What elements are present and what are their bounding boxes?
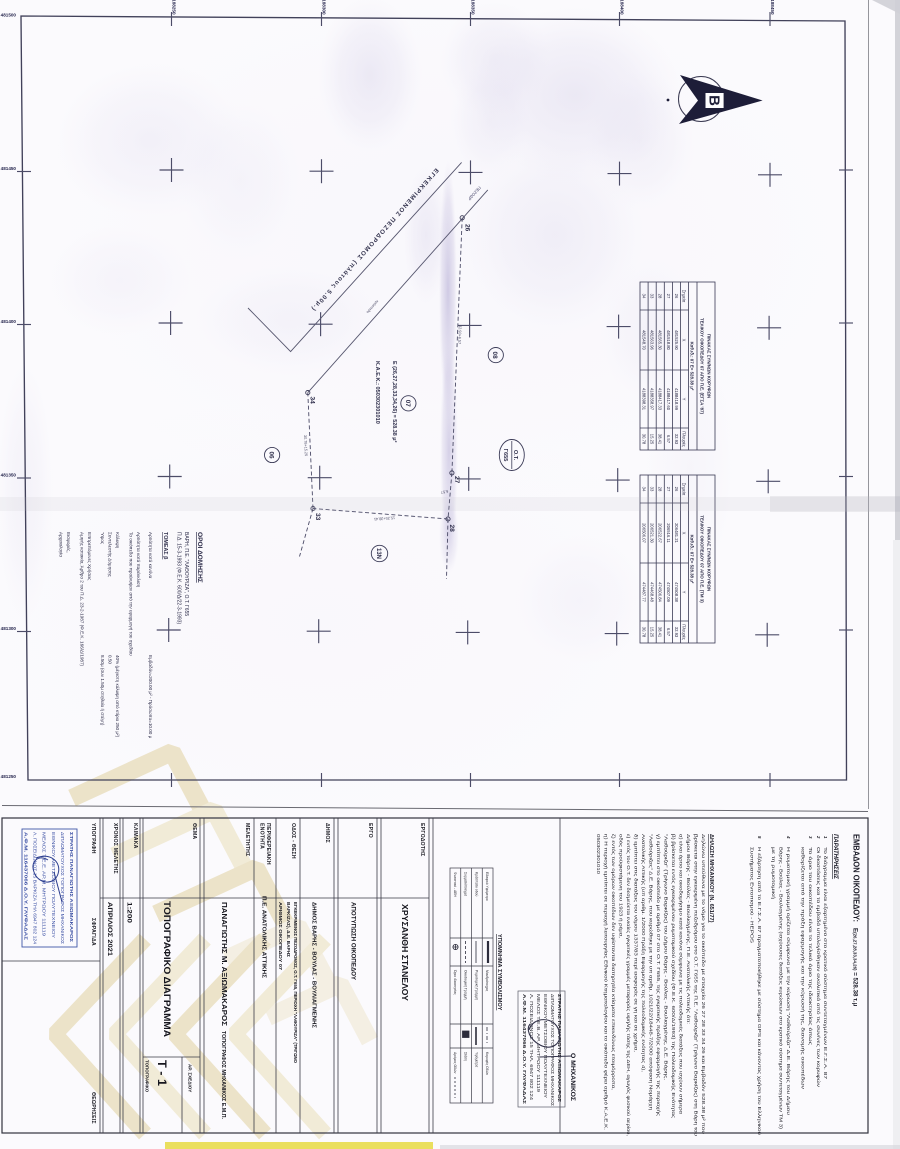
svg-text:Λ. ΠΟΣΕΙΔΩΝΟΣ 15 ΒΑΡΚΙΖΑ ΤΗΛ 6: Λ. ΠΟΣΕΙΔΩΝΟΣ 15 ΒΑΡΚΙΖΑ ΤΗΛ 6947 802 12… xyxy=(33,832,38,945)
svg-text:"Λαθούριζας" Δ.Ε. Βάρης, που: "Λαθούριζας" Δ.Ε. Βάρης, που κυρώθηκε με… xyxy=(649,834,654,1111)
svg-text:Δήμου Βάρης - Βούλας - Βουλιαγ: Δήμου Βάρης - Βούλας - Βουλιαγμένης, Π.Ε… xyxy=(686,834,691,1024)
svg-text:28: 28 xyxy=(658,487,663,492)
svg-text:Οικοδομική Γραμμή: Οικοδομική Γραμμή xyxy=(464,970,468,1000)
svg-text:4188417.60: 4188417.60 xyxy=(666,388,671,411)
svg-text:"Λαθούριζα" (Τρίγωνο Βαρκίζας): "Λαθούριζα" (Τρίγωνο Βαρκίζας) του Δήμου… xyxy=(664,834,669,1080)
svg-text:474487.77: 474487.77 xyxy=(642,582,647,602)
svg-text:Δηλώνω υπεύθυνα με το νόμο για: Δηλώνω υπεύθυνα με το νόμο για το οικόπε… xyxy=(701,834,706,1135)
svg-text:Υ: Υ xyxy=(682,398,687,401)
svg-text:ΧΡΥΣΑΝΘΗ ΣΤΑΝΕΛΟΥ: ΧΡΥΣΑΝΘΗ ΣΤΑΝΕΛΟΥ xyxy=(400,904,409,1002)
svg-text:ΘΕΜΑ: ΘΕΜΑ xyxy=(191,823,197,839)
svg-text:Κ.Α.Ε.Κ.: 050302301010: Κ.Α.Ε.Κ.: 050302301010 xyxy=(374,361,380,424)
svg-text:Πλευρές: Πλευρές xyxy=(682,624,687,640)
svg-text:Α.Φ.Μ. 116437066 Δ.Ο.Υ. ΓΛΥΦΑΔ: Α.Φ.Μ. 116437066 Δ.Ο.Υ. ΓΛΥΦΑΔΑΣ xyxy=(24,832,29,941)
svg-text:206516.11: 206516.11 xyxy=(666,523,671,543)
svg-text:27: 27 xyxy=(666,487,671,492)
svg-text:γ) εμπίπτει στο οικόπεδο με αρ: γ) εμπίπτει στο οικόπεδο με αριθμό 07 στ… xyxy=(656,834,661,1116)
svg-text:ε) εντός του Ο.Τ. δεν δεσμεύετ: ε) εντός του Ο.Τ. δεν δεσμεύεται ενιαίες… xyxy=(626,834,631,1136)
svg-text:Εδαφικό Υψόμετρο: Εδαφικό Υψόμετρο xyxy=(485,872,489,901)
svg-text:ΥΠΟΓΡΑΦΗ: ΥΠΟΓΡΑΦΗ xyxy=(90,823,96,854)
svg-text:ζ) εντός των ομόρων οικοπέδων: ζ) εντός των ομόρων οικοπέδων δεν υφίστα… xyxy=(611,834,616,1090)
svg-text:Ο ΜΗΧΑΝΙΚΟΣ: Ο ΜΗΧΑΝΙΚΟΣ xyxy=(569,1053,576,1101)
svg-text:Το όριο του οικοπέδου είναι το: Το όριο του οικοπέδου είναι το τελικό όρ… xyxy=(808,847,813,1045)
svg-text:4188300: 4188300 xyxy=(322,0,327,15)
svg-text:481450: 481450 xyxy=(1,166,17,171)
svg-text:Αρτιότητα κατά παρέκκλιση: Αρτιότητα κατά παρέκκλιση xyxy=(136,532,142,588)
svg-text:Η εξάρτηση από το Ε.Γ.Σ.Α. 87: Η εξάρτηση από το Ε.Γ.Σ.Α. 87 πραγματοπο… xyxy=(757,847,762,1136)
svg-text:15.25: 15.25 xyxy=(650,434,655,445)
svg-text:26: 26 xyxy=(674,487,679,492)
svg-text:4188400: 4188400 xyxy=(620,0,625,15)
svg-text:ΔΙΠΛΩΜΑΤΟΥΧΟΣ ΤΟΠΟΓΡΑΦΟΣ ΜΗΧΑΝ: ΔΙΠΛΩΜΑΤΟΥΧΟΣ ΤΟΠΟΓΡΑΦΟΣ ΜΗΧΑΝΙΚΟΣ xyxy=(550,994,555,1107)
svg-text:Η ρυμοτομική γραμμή ορίζεται σ: Η ρυμοτομική γραμμή ορίζεται σύμφωνα με … xyxy=(786,847,791,1116)
svg-text:Εισφορές,: Εισφορές, xyxy=(66,532,72,553)
svg-text:Υψόμετρα: Υψόμετρα xyxy=(474,1052,478,1067)
svg-text:ΠΑΝΑΓΙΩΤΗΣ Μ. ΑΞΙΩΜΑΚΑΡΟΣ: ΠΑΝΑΓΙΩΤΗΣ Μ. ΑΞΙΩΜΑΚΑΡΟΣ xyxy=(220,902,229,1026)
svg-text:καθορίζεται από την πράξη εφαρ: καθορίζεται από την πράξη εφαρμογής και … xyxy=(801,847,806,1090)
svg-text:4188418.99: 4188418.99 xyxy=(674,388,679,411)
svg-text:481500: 481500 xyxy=(1,13,17,18)
svg-text:ΠΑΡΑΤΗΡΗΣΕΙΣ: ΠΑΡΑΤΗΡΗΣΕΙΣ xyxy=(832,834,838,880)
svg-text:28: 28 xyxy=(658,294,663,299)
svg-text:474507.09: 474507.09 xyxy=(666,582,671,602)
svg-text:Ο.Τ.: Ο.Τ. xyxy=(512,450,518,461)
svg-text:28: 28 xyxy=(448,525,455,533)
svg-text:ΣΤΡΑΤΗΣ ΠΑΝΑΓΙΩΤΗΣ ΑΞΙΩΜΑΚΑΡΟΣ: ΣΤΡΑΤΗΣ ΠΑΝΑΓΙΩΤΗΣ ΑΞΙΩΜΑΚΑΡΟΣ xyxy=(69,832,74,943)
svg-text:30.78: 30.78 xyxy=(642,434,647,445)
svg-text:Όριο ιδιοκτησίας: Όριο ιδιοκτησίας xyxy=(453,969,457,995)
svg-text:β) βρίσκεται εντός εγκεκριμένο: β) βρίσκεται εντός εγκεκριμένου ρυμοτομι… xyxy=(671,834,676,1118)
svg-text:Κάλυψη: Κάλυψη xyxy=(115,532,121,549)
svg-text:Γ655: Γ655 xyxy=(502,449,508,462)
svg-text:ΒΑΡΗ, Π.Ε. "ΛΑΘΟΥΡΙΖΑ", Ο.Τ. Γ: ΒΑΡΗ, Π.Ε. "ΛΑΘΟΥΡΙΖΑ", Ο.Τ. Γ655 xyxy=(183,532,189,616)
svg-text:ΕΘΝΙΚΟΥ ΜΕΤΣΟΒΙΟΥ ΠΟΛΥΤΕΧΝΕΙΟΥ: ΕΘΝΙΚΟΥ ΜΕΤΣΟΒΙΟΥ ΠΟΛΥΤΕΧΝΕΙΟΥ xyxy=(51,832,56,938)
svg-text:4: 4 xyxy=(786,835,791,839)
svg-text:6.57: 6.57 xyxy=(666,628,671,637)
svg-text:βρίσκεται στην εγκεκριμένη πεζ: βρίσκεται στην εγκεκριμένη πεζοδρόμου στ… xyxy=(694,834,699,1137)
svg-text:Κράσπεδο οδού: Κράσπεδο οδού xyxy=(474,872,478,896)
svg-text:4188417.33: 4188417.33 xyxy=(658,388,663,411)
svg-text:Συρματόπλεγμα: Συρματόπλεγμα xyxy=(464,872,468,896)
svg-text:38.41: 38.41 xyxy=(658,627,663,638)
svg-text:ΔΙΠΛΩΜΑΤΟΥΧΟΣ ΤΟΠΟΓΡΑΦΟΣ ΜΗΧΑΝ: ΔΙΠΛΩΜΑΤΟΥΧΟΣ ΤΟΠΟΓΡΑΦΟΣ ΜΗΧΑΝΙΚΟΣ xyxy=(60,832,65,945)
svg-text:ΑΡΙΘΜΟΣ ΟΙΚΟΠΕΔΟΥ 07: ΑΡΙΘΜΟΣ ΟΙΚΟΠΕΔΟΥ 07 xyxy=(278,902,283,970)
svg-text:Σημεία: Σημεία xyxy=(682,290,687,303)
svg-text:30.78: 30.78 xyxy=(642,627,647,638)
svg-text:ΚΛΙΜΑΚΑ: ΚΛΙΜΑΚΑ xyxy=(132,823,138,849)
svg-text:Συστήματος Εντοπισμού - HEPOS: Συστήματος Εντοπισμού - HEPOS xyxy=(750,847,755,943)
svg-text:ΕΜΒΑΔΟΝ ΟΙΚΟΠΕΔΟΥ:: ΕΜΒΑΔΟΝ ΟΙΚΟΠΕΔΟΥ: xyxy=(852,834,861,922)
svg-text:33: 33 xyxy=(314,513,321,521)
svg-text:Α.Φ.Μ. 116437066 Δ.Ο.Υ. ΓΛΥΦΑΔ: Α.Φ.Μ. 116437066 Δ.Ο.Υ. ΓΛΥΦΑΔΑΣ xyxy=(522,994,527,1105)
svg-text:26: 26 xyxy=(464,224,471,232)
svg-text:Αρτιότητα κατά κανόνα: Αρτιότητα κατά κανόνα xyxy=(148,532,154,579)
svg-text:ΟΡΟΙ ΔΟΜΗΣΗΣ: ΟΡΟΙ ΔΟΜΗΣΗΣ xyxy=(196,532,203,583)
svg-text:ΒΑΡΚΙΖΑΣ), Δ.Ε. ΒΑΡΗΣ: ΒΑΡΚΙΖΑΣ), Δ.Ε. ΒΑΡΗΣ xyxy=(286,902,291,957)
svg-text:4188450: 4188450 xyxy=(770,0,775,15)
svg-text:δ) εμπίπτει στις διατάξεις του: δ) εμπίπτει στις διατάξεις του νόμου 133… xyxy=(634,834,639,1052)
svg-text:ΘΕΩΡΗΣΕΙΣ: ΘΕΩΡΗΣΕΙΣ xyxy=(90,1092,96,1124)
svg-text:2: 2 xyxy=(816,835,821,839)
svg-text:4188358.97: 4188358.97 xyxy=(650,388,655,411)
svg-text:08: 08 xyxy=(491,352,498,360)
svg-text:Αρχαιολογία: Αρχαιολογία xyxy=(59,532,64,557)
svg-text:ΔΗΜΟΣ ΒΑΡΗΣ - ΒΟΥΛΑΣ - ΒΟΥΛΙΑΓ: ΔΗΜΟΣ ΒΑΡΗΣ - ΒΟΥΛΑΣ - ΒΟΥΛΙΑΓΜΕΝΗΣ xyxy=(311,902,317,1029)
svg-text:B: B xyxy=(706,95,723,106)
svg-text:34: 34 xyxy=(642,487,647,492)
svg-text:Π.Ε. ΑΝΑΤΟΛΙΚΗΣ ΑΤΤΙΚΗΣ: Π.Ε. ΑΝΑΤΟΛΙΚΗΣ ΑΤΤΙΚΗΣ xyxy=(261,896,267,978)
svg-text:050302301010: 050302301010 xyxy=(596,834,601,875)
svg-text:ΤΟΠΟΓΡΑΦΙΚΟ: ΤΟΠΟΓΡΑΦΙΚΟ xyxy=(145,1060,150,1093)
svg-text:481400: 481400 xyxy=(1,319,17,324)
svg-text:33: 33 xyxy=(650,294,655,299)
svg-text:οδός προϋφιστάμενη του 1923 ή: οδός προϋφιστάμενη του 1923 ή ρέμα, xyxy=(619,834,624,938)
svg-text:32.93: 32.93 xyxy=(674,434,679,445)
svg-text:Οι διαστάσεις και τα εμβαδά υπ: Οι διαστάσεις και τα εμβαδά υπολογίσθηκα… xyxy=(816,847,821,1088)
svg-text:8.50μ (συν 1.50μ στηθαίο ή στ: 8.50μ (συν 1.50μ στηθαίο ή στέγη) xyxy=(100,655,106,726)
svg-text:ΧΡΟΝΟΣ ΜΕΛΕΤΗΣ: ΧΡΟΝΟΣ ΜΕΛΕΤΗΣ xyxy=(112,823,118,874)
svg-text:07: 07 xyxy=(404,400,411,408)
svg-text:ΑΡ. ΣΧΕΔΙΟΥ: ΑΡ. ΣΧΕΔΙΟΥ xyxy=(188,1064,193,1092)
svg-text:34: 34 xyxy=(309,397,316,405)
svg-text:206521.30: 206521.30 xyxy=(650,523,655,543)
svg-text:4188250: 4188250 xyxy=(172,0,177,15)
svg-text:481250: 481250 xyxy=(1,774,17,779)
svg-text:474508.38: 474508.38 xyxy=(674,582,679,602)
svg-text:1:200: 1:200 xyxy=(126,902,133,923)
svg-text:Ε (26,27,28,33,34,26) = 528.38: Ε (26,27,28,33,34,26) = 528.38 μ² xyxy=(391,361,397,443)
svg-text:481563.96: 481563.96 xyxy=(650,330,655,350)
svg-text:481548.70: 481548.70 xyxy=(642,330,647,350)
svg-text:η) Η περιοχή εμπίπτει σε περιο: η) Η περιοχή εμπίπτει σε περιοχή λειτουρ… xyxy=(604,834,609,1130)
svg-text:Σημεία: Σημεία xyxy=(682,483,687,496)
svg-text:Χ: Χ xyxy=(682,532,687,535)
svg-text:ΠΙΝΑΚΑΣ ΣΥΝ/ΝΩΝ ΚΟΡΥΦΩΝ: ΠΙΝΑΚΑΣ ΣΥΝ/ΝΩΝ ΚΟΡΥΦΩΝ xyxy=(707,527,712,591)
svg-text:4188350: 4188350 xyxy=(471,0,476,15)
svg-text:Π.Δ. 15-3-1993 (Φ.Ε.Κ. 600/Δ/2: Π.Δ. 15-3-1993 (Φ.Ε.Κ. 600/Δ/22-3-1993) xyxy=(176,532,182,624)
svg-text:4188398.31: 4188398.31 xyxy=(642,388,647,411)
svg-text:Ανατολικής Αττικής (υπ αριθμ.: Ανατολικής Αττικής (υπ αριθμ. 1/2000 Πρά… xyxy=(641,834,646,1072)
svg-text:Το διάγραμμα είναι εξαρτημένο: Το διάγραμμα είναι εξαρτημένο στο κρατικ… xyxy=(823,847,828,1080)
svg-text:481350: 481350 xyxy=(1,473,17,478)
svg-text:ΣΤΡΑΤΗΣ ΠΑΝΑΓΙΩΤΗΣ ΑΞΙΩΜΑΚΑΡΟΣ: ΣΤΡΑΤΗΣ ΠΑΝΑΓΙΩΤΗΣ ΑΞΙΩΜΑΚΑΡΟΣ xyxy=(557,994,562,1103)
svg-text:ΕΓΚΕΚΡΙΜΕΝΟΣ ΠΕΖΟΔΡΟΜΟΣ, Ο.Τ.: ΕΓΚΕΚΡΙΜΕΝΟΣ ΠΕΖΟΔΡΟΜΟΣ, Ο.Τ. Γ655, ΠΕΡΙ… xyxy=(293,902,298,1063)
svg-text:Υ: Υ xyxy=(682,591,687,594)
svg-text:ΕΡΓΟ: ΕΡΓΟ xyxy=(367,823,373,838)
svg-text:206481.21: 206481.21 xyxy=(674,523,679,543)
svg-text:481518.80: 481518.80 xyxy=(666,330,671,350)
svg-text:Βάρης - Βούλας - Βουλιαγμένης: Βάρης - Βούλας - Βουλιαγμένης (ισχύουσες… xyxy=(779,847,784,1130)
svg-text:26: 26 xyxy=(674,294,679,299)
svg-text:Συντελεστής Δόμησης: Συντελεστής Δόμησης xyxy=(108,532,114,578)
svg-text:ΕΝΟΤΗΤΑ: ΕΝΟΤΗΤΑ xyxy=(259,823,265,849)
svg-text:ΑΠΡΙΛΙΟΣ 2021: ΑΠΡΙΛΙΟΣ 2021 xyxy=(106,902,112,957)
svg-text:33: 33 xyxy=(650,487,655,492)
svg-text:ΔΗΛΩΣΗ ΜΗΧΑΝΙΚΟΥ (Ν. 651/77): ΔΗΛΩΣΗ ΜΗΧΑΝΙΚΟΥ (Ν. 651/77) xyxy=(708,834,714,923)
svg-text:Κορυφές Οδών: Κορυφές Οδών xyxy=(485,1052,489,1075)
svg-text:474468.48: 474468.48 xyxy=(650,582,655,602)
svg-text:Ύψος: Ύψος xyxy=(100,532,105,545)
svg-text:15.25: 15.25 xyxy=(650,627,655,638)
svg-text:Πλευρές: Πλευρές xyxy=(682,431,687,447)
svg-text:με τη ρυμοτομική: με τη ρυμοτομική xyxy=(771,847,776,900)
svg-text:Αμιγής κατοικία, Άρθρο 2 του Π: Αμιγής κατοικία, Άρθρο 2 του Π.Δ. 23-2-1… xyxy=(80,532,86,667)
svg-text:40% (μέγιστη κάλυψη από κτίριο: 40% (μέγιστη κάλυψη από κτίριο 250 μ²) xyxy=(115,655,121,738)
svg-text:38.41: 38.41 xyxy=(658,434,663,445)
svg-text:Λ. ΠΟΣΕΙΔΩΝΟΣ 15 ΤΗΛ. 6947 80: Λ. ΠΟΣΕΙΔΩΝΟΣ 15 ΤΗΛ. 6947 802 124 xyxy=(529,994,534,1101)
svg-text:ΥΠΟΜΝΗΜΑ ΣΥΜΒΟΛΙΣΜΟΥ: ΥΠΟΜΝΗΜΑ ΣΥΜΒΟΛΙΣΜΟΥ xyxy=(496,934,502,1011)
svg-text:Καθ.ιδ.: 07 Ε= 528.38: Καθ.ιδ.: 07 Ε= 528.38 μ² xyxy=(690,535,695,584)
svg-text:206522.67: 206522.67 xyxy=(658,523,663,543)
svg-text:481565.30: 481565.30 xyxy=(658,330,663,350)
svg-text:13N: 13N xyxy=(375,548,381,559)
svg-text:ΤΕΛΙΚΟΥ ΟΙΚΟΠΕΔΟΥ 07 ΑΠΟ Π.Ε.: ΤΕΛΙΚΟΥ ΟΙΚΟΠΕΔΟΥ 07 ΑΠΟ Π.Ε. (ΕΓΣΑ '87) xyxy=(700,318,705,414)
svg-text:ΔΗΜΟΣ: ΔΗΜΟΣ xyxy=(324,823,330,843)
svg-text:06: 06 xyxy=(268,451,275,459)
svg-text:481525.90: 481525.90 xyxy=(674,330,679,350)
svg-text:Στάση: Στάση xyxy=(464,1052,468,1061)
svg-text:ΤΟΜΕΑΣ β: ΤΟΜΕΑΣ β xyxy=(162,532,168,560)
svg-text:Καθ.ιδ.: 07 Ε= 528.38: Καθ.ιδ.: 07 Ε= 528.38 μ² xyxy=(690,342,695,391)
svg-text:Δρόμος Οδών: Δρόμος Οδών xyxy=(453,1052,457,1074)
svg-text:0.50: 0.50 xyxy=(108,655,113,664)
svg-text:Εμβαδόν=200.00 μ² - Πρόσωπο=10: Εμβαδόν=200.00 μ² - Πρόσωπο=10.00 μ xyxy=(148,655,154,739)
svg-text:ΣΦΡΑΓΙΔΑ: ΣΦΡΑΓΙΔΑ xyxy=(90,918,96,946)
svg-text:481300: 481300 xyxy=(1,626,17,631)
svg-text:Ε(26,27,28,33,34,26) = 528.38: Ε(26,27,28,33,34,26) = 528.38 τ.μ xyxy=(852,928,859,1007)
svg-text:Ρυμοτομική Γραμμή: Ρυμοτομική Γραμμή xyxy=(474,970,478,1000)
svg-text:Φωτιστικό - ΔΕΗ: Φωτιστικό - ΔΕΗ xyxy=(453,872,457,897)
svg-text:ΜΕΛΕΤΗΤΗΣ: ΜΕΛΕΤΗΤΗΣ xyxy=(244,823,250,856)
svg-text:α) είναι άρτιο και οικοδομήσιμ: α) είναι άρτιο και οικοδομήσιμο κατά καν… xyxy=(679,834,684,1115)
svg-text:Τα οικόπεδα που προέκυψαν από: Τα οικόπεδα που προέκυψαν από την εφαρμο… xyxy=(129,532,135,656)
svg-text:ΑΠΟΤΥΠΩΣΗ ΟΙΚΟΠΕΔΟΥ: ΑΠΟΤΥΠΩΣΗ ΟΙΚΟΠΕΔΟΥ xyxy=(350,902,357,981)
svg-text:ΤΟΠΟΓΡΑΦΙΚΟ ΔΙΑΓΡΑΜΜΑ: ΤΟΠΟΓΡΑΦΙΚΟ ΔΙΑΓΡΑΜΜΑ xyxy=(161,901,172,1037)
svg-text:34: 34 xyxy=(642,294,647,299)
svg-text:ΜΕΛΟΣ Τ.Ε.Ε. ΑΡ.Μ. ΜΗΤΡΩΟΥ 111: ΜΕΛΟΣ Τ.Ε.Ε. ΑΡ.Μ. ΜΗΤΡΩΟΥ 111119 xyxy=(42,832,47,937)
svg-text:Επιτρεπόμενες Χρήσεις: Επιτρεπόμενες Χρήσεις xyxy=(87,532,93,581)
svg-text:206506.07: 206506.07 xyxy=(642,523,647,543)
svg-text:ΤΟΠΟΓΡΑΦΟΣ ΜΗΧΑΝΙΚΟΣ Ε.Μ.Π.: ΤΟΠΟΓΡΑΦΟΣ ΜΗΧΑΝΙΚΟΣ Ε.Μ.Π. xyxy=(220,1031,226,1120)
svg-text:ΠΙΝΑΚΑΣ ΣΥΝ/ΝΩΝ ΚΟΡΥΦΩΝ: ΠΙΝΑΚΑΣ ΣΥΝ/ΝΩΝ ΚΟΡΥΦΩΝ xyxy=(707,334,712,398)
svg-text:6.57: 6.57 xyxy=(666,435,671,444)
svg-text:Τ - 1: Τ - 1 xyxy=(155,1060,167,1087)
svg-text:Χ: Χ xyxy=(682,339,687,342)
svg-text:32.93: 32.93 xyxy=(674,627,679,638)
svg-text:ΕΡΓΟΔΟΤΗΣ: ΕΡΓΟΔΟΤΗΣ xyxy=(419,823,425,856)
svg-text:27: 27 xyxy=(453,476,460,484)
svg-text:ΠΕΡΙΦΕΡΕΙΑΚΗ: ΠΕΡΙΦΕΡΕΙΑΚΗ xyxy=(265,823,271,865)
svg-text:Μανδρότοιχος: Μανδρότοιχος xyxy=(485,970,489,992)
svg-text:32.93+6.57: 32.93+6.57 xyxy=(457,325,462,344)
svg-text:27: 27 xyxy=(666,294,671,299)
svg-text:474506.84: 474506.84 xyxy=(658,582,663,602)
svg-text:ΤΕΛΙΚΟΥ ΟΙΚΟΠΕΔΟΥ 07 ΑΠΟ Π.Ε.: ΤΕΛΙΚΟΥ ΟΙΚΟΠΕΔΟΥ 07 ΑΠΟ Π.Ε. (ΤΜ 3) xyxy=(700,515,705,603)
svg-text:ΟΔΟΣ - ΘΕΣΗ: ΟΔΟΣ - ΘΕΣΗ xyxy=(290,823,296,859)
